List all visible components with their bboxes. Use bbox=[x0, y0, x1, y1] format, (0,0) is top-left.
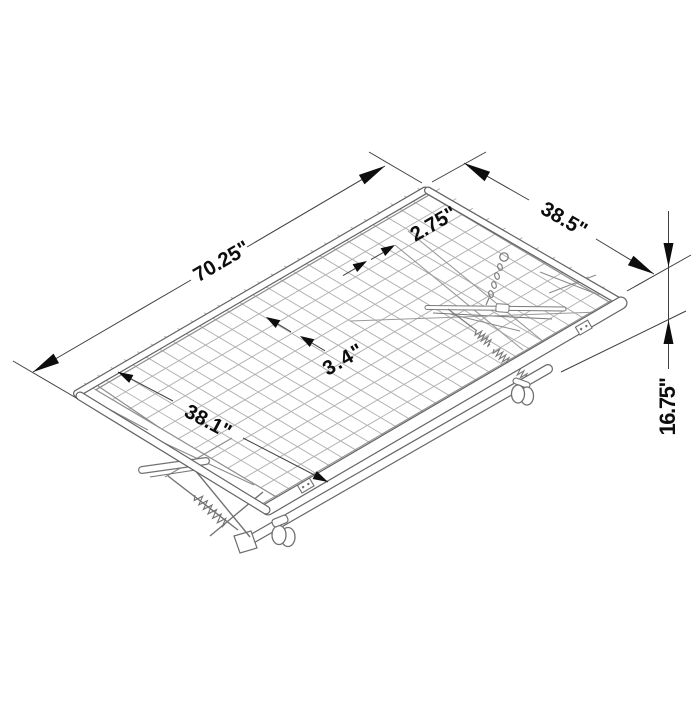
svg-text:16.75": 16.75" bbox=[655, 378, 680, 435]
